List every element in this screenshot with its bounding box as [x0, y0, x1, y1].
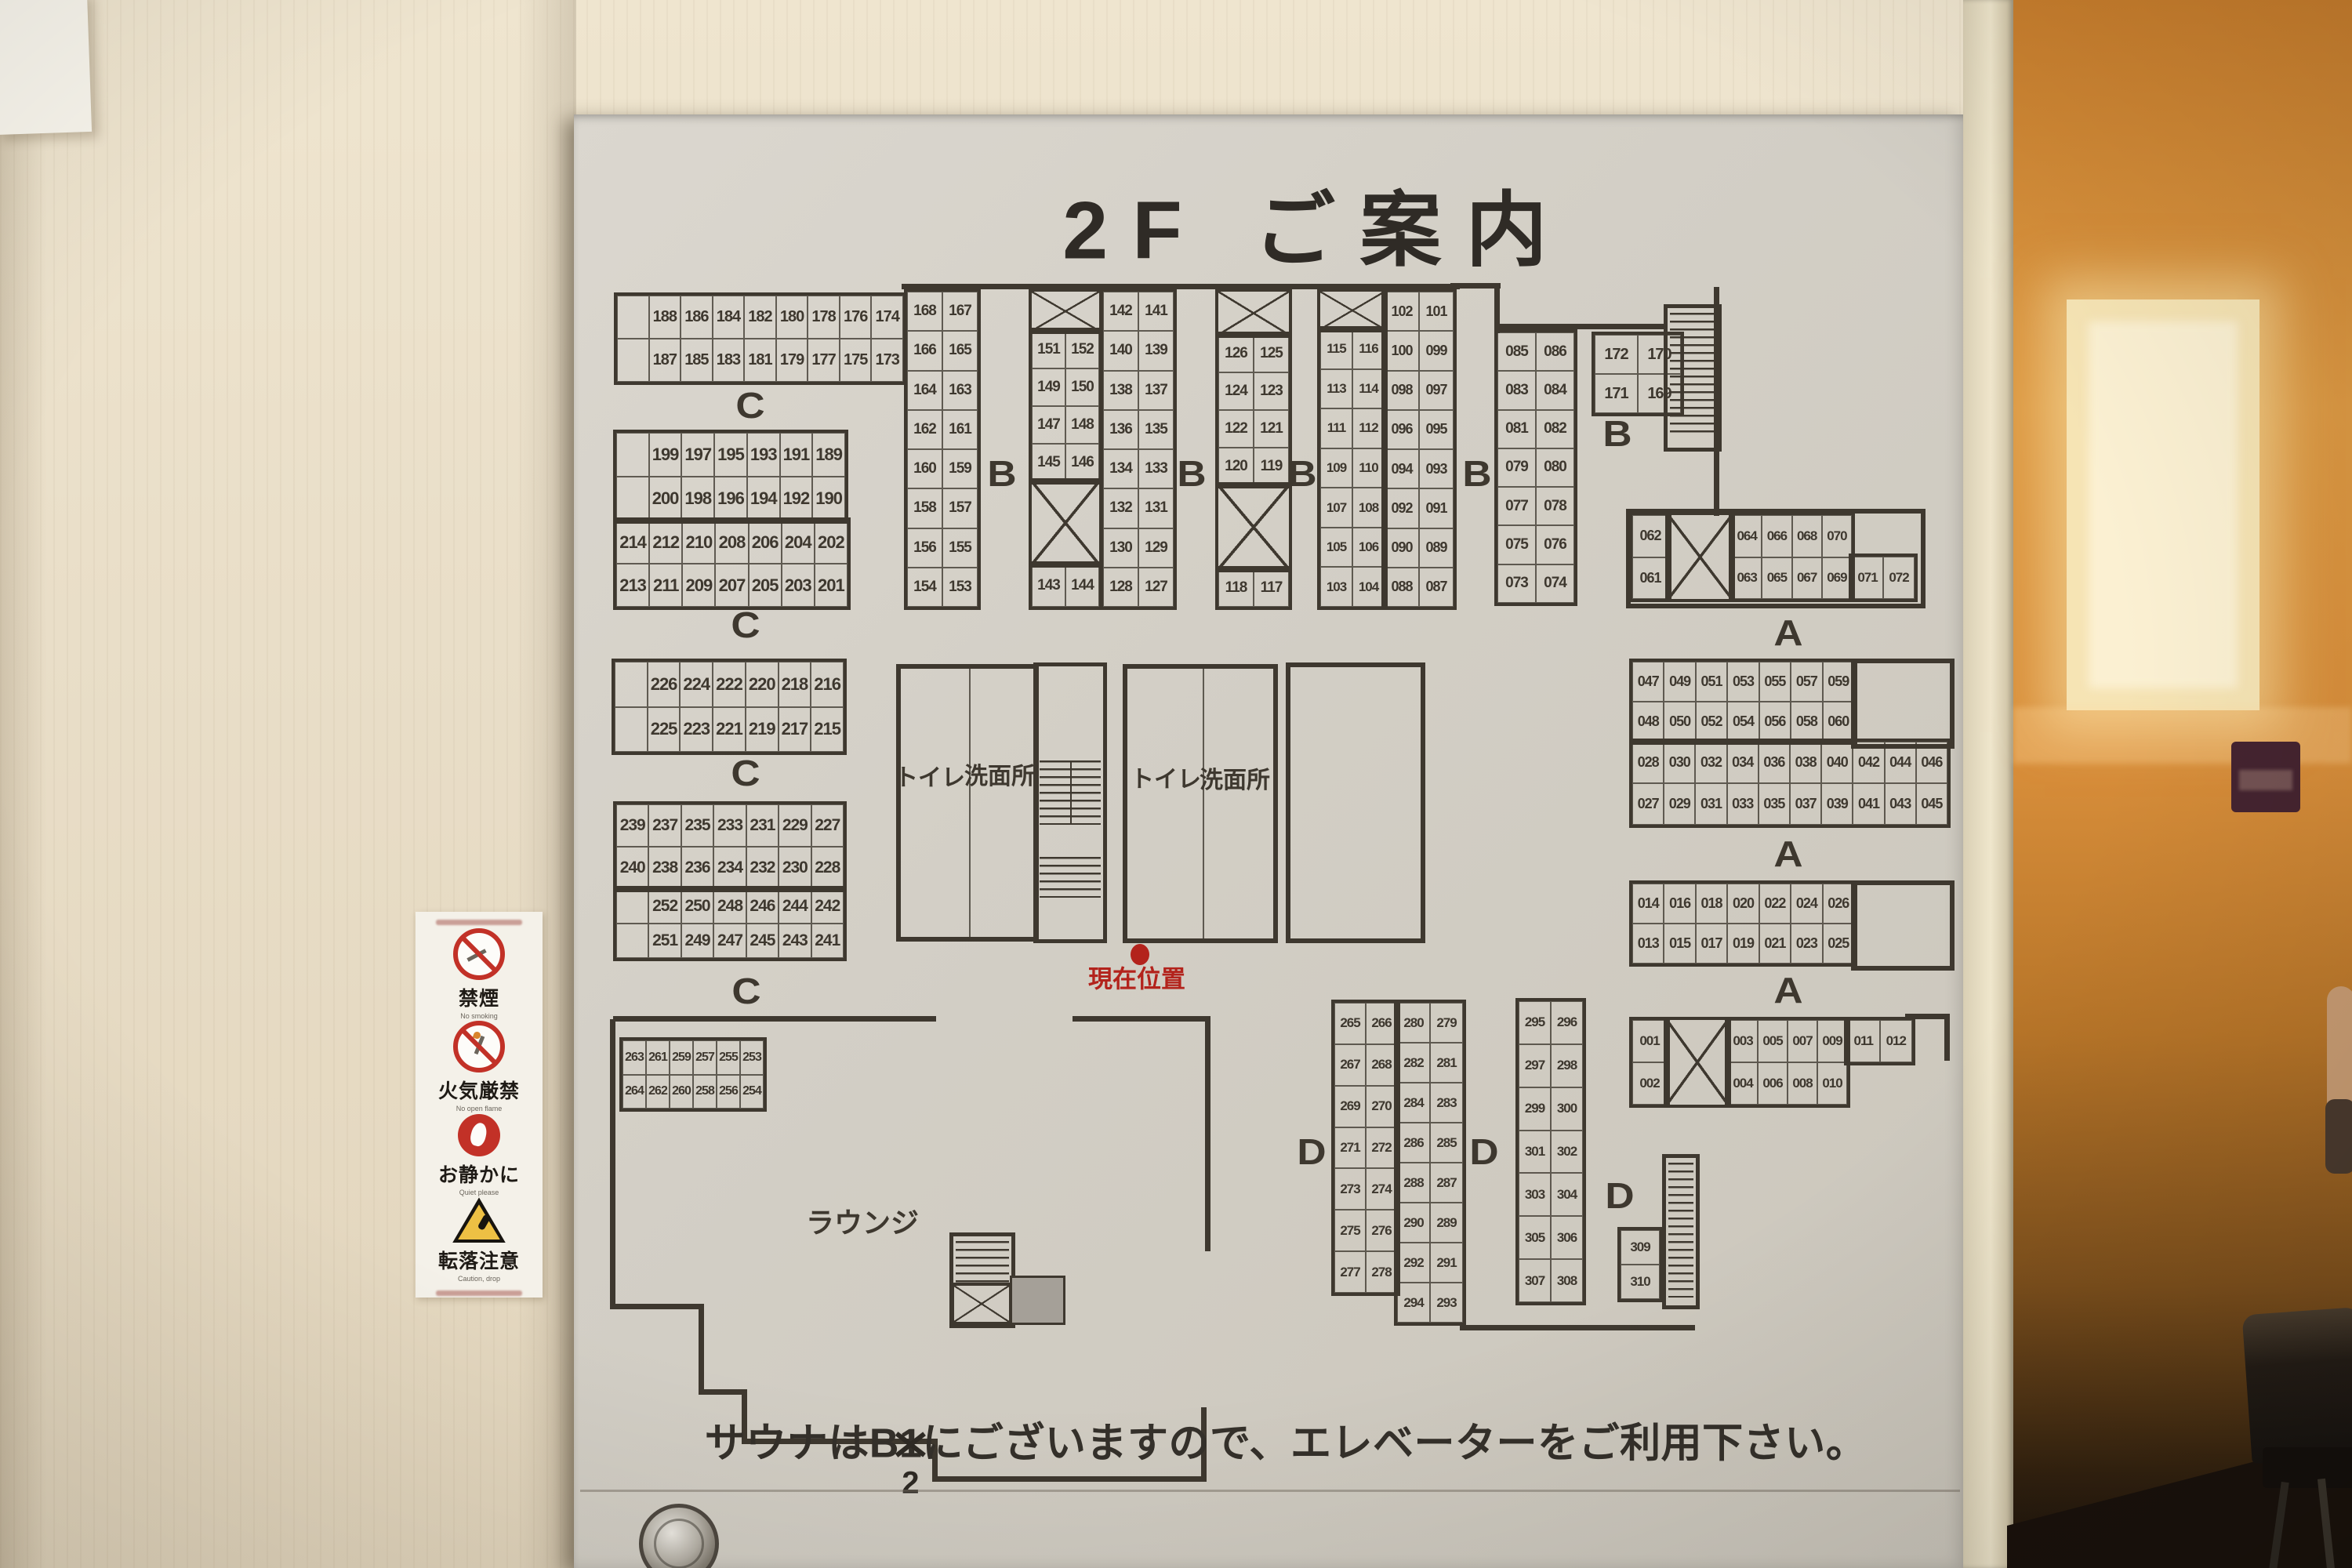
hallway-wall-sign: [2231, 742, 2300, 812]
capsule-grid-c-253: 263261259257255253264262260258256254: [619, 1037, 767, 1112]
capsule-cell: 086: [1536, 332, 1574, 371]
capsule-cell: 183: [713, 339, 745, 382]
capsule-grid-d-295: 2952962972982993003013023033043053063073…: [1515, 998, 1586, 1305]
capsule-cell: 306: [1551, 1216, 1583, 1259]
capsule-cell: 111: [1320, 408, 1352, 448]
sauna-note-correction: 2: [902, 1465, 920, 1501]
capsule-cell: 154: [907, 568, 942, 607]
capsule-cell: 016: [1664, 884, 1695, 924]
capsule-cell: [617, 339, 649, 382]
capsule-cell: 042: [1853, 742, 1884, 783]
capsule-grid-a-027: 0280300320340360380400420440460270290310…: [1629, 739, 1951, 828]
capsule-cell: 297: [1519, 1044, 1551, 1087]
capsule-grid-a-013: 0140160180200220240260130150170190210230…: [1629, 880, 1857, 967]
section-letter-B: B: [1287, 452, 1316, 495]
section-letter-B: B: [1462, 452, 1491, 495]
capsule-cell: 231: [746, 804, 779, 847]
capsule-cell: 175: [840, 339, 872, 382]
warning-label-en: No open flame: [456, 1105, 503, 1112]
capsule-cell: 109: [1320, 448, 1352, 488]
capsule-cell: 189: [812, 433, 845, 477]
capsule-cell: 144: [1065, 564, 1099, 607]
capsule-cell: 065: [1762, 557, 1791, 600]
capsule-cell: 128: [1103, 568, 1138, 607]
capsule-cell: 072: [1883, 557, 1915, 599]
capsule-cell: 106: [1352, 528, 1385, 568]
sticker-small-print: [436, 920, 522, 925]
crossed-box: [1215, 482, 1292, 572]
capsule-cell: 130: [1103, 528, 1138, 568]
capsule-cell: 211: [649, 564, 682, 607]
person-sleeve: [2325, 1099, 2352, 1174]
capsule-cell: [616, 924, 648, 958]
capsule-cell: 156: [907, 528, 942, 568]
stair-treads: [956, 1241, 1009, 1288]
capsule-cell: 099: [1419, 331, 1454, 370]
capsule-cell: 138: [1103, 371, 1138, 410]
capsule-cell: 125: [1254, 335, 1289, 372]
capsule-cell: 261: [646, 1040, 670, 1075]
capsule-cell: 285: [1430, 1123, 1463, 1163]
capsule-cell: 170: [1638, 335, 1681, 374]
capsule-cell: 277: [1334, 1251, 1366, 1293]
capsule-cell: 251: [648, 924, 681, 958]
capsule-cell: 165: [942, 331, 978, 370]
capsule-cell: 217: [779, 707, 811, 753]
capsule-cell: 296: [1551, 1001, 1583, 1044]
capsule-cell: 200: [649, 477, 682, 521]
sauna-note-pre: サウナは: [705, 1421, 869, 1467]
hallway-light-band: [2013, 707, 2352, 764]
capsule-cell: 017: [1696, 924, 1727, 964]
capsule-grid-d-279: 2802792822812842832862852882872902892922…: [1394, 1000, 1466, 1326]
capsule-cell: 162: [907, 410, 942, 449]
capsule-cell: 003: [1728, 1020, 1758, 1062]
warning-label-en: Quiet please: [459, 1189, 499, 1196]
capsule-cell: 169: [1638, 374, 1681, 413]
capsule-cell: 079: [1497, 448, 1536, 487]
capsule-cell: 187: [649, 339, 681, 382]
capsule-cell: 117: [1254, 569, 1289, 607]
capsule-cell: 135: [1138, 410, 1174, 449]
capsule-cell: 197: [681, 433, 714, 477]
capsule-cell: 167: [942, 292, 978, 331]
facility-room: [1123, 664, 1278, 943]
capsule-cell: 213: [616, 564, 649, 607]
capsule-cell: 021: [1759, 924, 1791, 964]
room-divider-line: [1203, 669, 1204, 938]
capsule-cell: 229: [779, 804, 811, 847]
stair-treads: [1668, 1163, 1693, 1298]
capsule-cell: 293: [1430, 1283, 1463, 1323]
capsule-cell: 202: [815, 521, 848, 564]
capsule-cell: 096: [1385, 410, 1419, 449]
capsule-cell: 225: [648, 707, 681, 753]
capsule-cell: 121: [1254, 410, 1289, 448]
warning-label-en: Caution, drop: [458, 1275, 500, 1283]
capsule-cell: 085: [1497, 332, 1536, 371]
capsule-grid-c-top: 1881861841821801781761741871851831811791…: [614, 292, 906, 385]
warning-sticker: 禁煙No smoking火気厳禁No open flameお静かにQuiet p…: [416, 912, 543, 1298]
capsule-grid-b-087: 1021011000990980970960950940930920910900…: [1381, 289, 1457, 610]
capsule-cell: 035: [1759, 783, 1790, 825]
capsule-cell: 302: [1551, 1131, 1583, 1174]
capsule-cell: 234: [713, 847, 746, 889]
capsule-cell: 290: [1397, 1203, 1430, 1243]
capsule-cell: 174: [871, 296, 903, 339]
capsule-cell: 073: [1497, 564, 1536, 603]
capsule-grid-a-003: 003005007009004006008010: [1725, 1017, 1850, 1108]
capsule-cell: 262: [646, 1075, 670, 1109]
warning-sticker-items: 禁煙No smoking火気厳禁No open flameお静かにQuiet p…: [438, 927, 520, 1284]
capsule-cell: 279: [1430, 1003, 1463, 1043]
capsule-cell: 164: [907, 371, 942, 410]
capsule-cell: [615, 662, 648, 707]
capsule-cell: 136: [1103, 410, 1138, 449]
section-letter-B: B: [1177, 452, 1206, 495]
capsule-cell: 304: [1551, 1173, 1583, 1216]
capsule-cell: 253: [740, 1040, 764, 1075]
capsule-cell: 030: [1664, 742, 1695, 783]
lit-panel: [2067, 299, 2259, 710]
capsule-cell: 280: [1397, 1003, 1430, 1043]
capsule-cell: 232: [746, 847, 779, 889]
capsule-grid-b-169: 172170171169: [1592, 332, 1684, 416]
capsule-cell: 101: [1419, 292, 1454, 331]
capsule-cell: 060: [1823, 702, 1854, 742]
section-letter-A: A: [1773, 833, 1802, 875]
capsule-cell: 194: [747, 477, 780, 521]
capsule-cell: 247: [713, 924, 746, 958]
capsule-cell: 103: [1320, 567, 1352, 607]
capsule-cell: 095: [1419, 410, 1454, 449]
capsule-cell: 039: [1821, 783, 1853, 825]
capsule-cell: 009: [1817, 1020, 1847, 1062]
capsule-cell: 291: [1430, 1243, 1463, 1283]
capsule-cell: 191: [780, 433, 813, 477]
wall-segment: [932, 1476, 1207, 1482]
capsule-cell: 036: [1759, 742, 1790, 783]
capsule-cell: 129: [1138, 528, 1174, 568]
capsule-cell: 270: [1366, 1086, 1397, 1127]
warning-label-jp: 転落注意: [438, 1246, 520, 1274]
warning-item: お静かにQuiet please: [438, 1114, 520, 1196]
room-outline: [1851, 659, 1955, 749]
current-location-label: 現在位置: [1088, 960, 1185, 995]
capsule-cell: 071: [1852, 557, 1883, 599]
capsule-cell: 146: [1065, 444, 1099, 481]
no-smoking-icon: [453, 928, 505, 980]
capsule-cell: 112: [1352, 408, 1385, 448]
capsule-cell: 063: [1732, 557, 1762, 600]
capsule-cell: 108: [1352, 488, 1385, 528]
capsule-cell: 002: [1632, 1062, 1667, 1105]
section-letter-B: B: [1602, 412, 1632, 455]
capsule-cell: 205: [749, 564, 782, 607]
room-outline: [1851, 880, 1955, 971]
capsule-cell: 186: [681, 296, 713, 339]
capsule-cell: 089: [1419, 528, 1454, 568]
capsule-cell: 274: [1366, 1168, 1397, 1210]
capsule-cell: 166: [907, 331, 942, 370]
section-letter-A: A: [1773, 969, 1802, 1011]
capsule-cell: 061: [1632, 557, 1668, 600]
capsule-cell: 076: [1536, 525, 1574, 564]
capsule-cell: 075: [1497, 525, 1536, 564]
capsule-cell: 005: [1758, 1020, 1788, 1062]
capsule-grid-b-145: 151152149150147148145146: [1029, 328, 1102, 485]
capsule-cell: 102: [1385, 292, 1419, 331]
warning-label-jp: お静かに: [438, 1160, 520, 1188]
capsule-cell: 081: [1497, 410, 1536, 448]
capsule-cell: 053: [1727, 662, 1759, 702]
capsule-cell: 066: [1762, 515, 1791, 557]
capsule-cell: 214: [616, 521, 649, 564]
capsule-grid-c-215: 226224222220218216225223221219217215: [612, 659, 847, 755]
capsule-cell: 149: [1032, 368, 1065, 406]
capsule-cell: 161: [942, 410, 978, 449]
capsule-cell: 020: [1727, 884, 1759, 924]
capsule-cell: [616, 477, 649, 521]
capsule-cell: 160: [907, 449, 942, 488]
capsule-grid-a-071: 071072: [1849, 554, 1918, 602]
capsule-cell: 078: [1536, 487, 1574, 525]
capsule-cell: 242: [811, 889, 844, 924]
capsule-cell: 235: [681, 804, 713, 847]
capsule-grid-c-241: 252250248246244242251249247245243241: [613, 886, 847, 961]
capsule-cell: 266: [1366, 1003, 1397, 1044]
room-label: トイレ: [1131, 760, 1201, 794]
capsule-cell: 084: [1536, 371, 1574, 409]
capsule-cell: 019: [1727, 924, 1759, 964]
sticker-small-print: [436, 1290, 522, 1296]
capsule-grid-b-153: 1681671661651641631621611601591581571561…: [904, 289, 981, 610]
capsule-cell: 273: [1334, 1168, 1366, 1210]
capsule-cell: 239: [616, 804, 648, 847]
capsule-cell: 233: [713, 804, 746, 847]
stair-treads: [1040, 760, 1101, 825]
capsule-cell: 196: [714, 477, 747, 521]
wall-segment: [1460, 1325, 1695, 1330]
capsule-cell: 097: [1419, 371, 1454, 410]
capsule-cell: 113: [1320, 369, 1352, 409]
door-frame: [1963, 0, 2013, 1568]
room-label: トイレ: [895, 758, 965, 793]
capsule-cell: 265: [1334, 1003, 1366, 1044]
capsule-cell: 255: [717, 1040, 740, 1075]
capsule-cell: 098: [1385, 371, 1419, 410]
capsule-cell: 244: [779, 889, 811, 924]
sauna-note-struck-digit: 12: [899, 1421, 922, 1468]
shaded-block: [1010, 1276, 1065, 1325]
facility-room: [896, 664, 1039, 942]
capsule-cell: 172: [1595, 335, 1638, 374]
capsule-cell: 272: [1366, 1127, 1397, 1169]
chair-seat: [2263, 1447, 2352, 1488]
capsule-cell: 132: [1103, 488, 1138, 528]
capsule-cell: 018: [1696, 884, 1727, 924]
capsule-cell: 026: [1823, 884, 1854, 924]
room-label: 洗面所: [964, 757, 1035, 791]
capsule-cell: 283: [1430, 1083, 1463, 1123]
capsule-cell: 122: [1218, 410, 1254, 448]
capsule-cell: 090: [1385, 528, 1419, 568]
capsule-cell: 028: [1632, 742, 1664, 783]
capsule-cell: 298: [1551, 1044, 1583, 1087]
capsule-cell: 120: [1218, 448, 1254, 485]
capsule-cell: [616, 433, 649, 477]
capsule-cell: 215: [811, 707, 844, 753]
capsule-cell: 207: [715, 564, 748, 607]
capsule-cell: 254: [740, 1075, 764, 1109]
capsule-cell: 014: [1632, 884, 1664, 924]
capsule-cell: 300: [1551, 1087, 1583, 1131]
capsule-grid-a-047: 0470490510530550570590480500520540560580…: [1629, 659, 1857, 745]
capsule-grid-b-103: 1151161131141111121091101071081051061031…: [1317, 326, 1388, 610]
capsule-cell: 246: [746, 889, 779, 924]
capsule-cell: 115: [1320, 329, 1352, 369]
capsule-cell: 069: [1822, 557, 1852, 600]
capsule-cell: 092: [1385, 488, 1419, 528]
capsule-cell: 303: [1519, 1173, 1551, 1216]
capsule-cell: 059: [1823, 662, 1854, 702]
capsule-cell: 248: [713, 889, 746, 924]
wall-segment: [610, 1304, 704, 1309]
capsule-cell: 119: [1254, 448, 1289, 485]
capsule-grid-c-227: 2392372352332312292272402382362342322302…: [613, 801, 847, 892]
room-label: 洗面所: [1200, 760, 1270, 795]
capsule-grid-b-127: 1421411401391381371361351341331321311301…: [1100, 289, 1177, 610]
capsule-grid-b-143: 143144: [1029, 561, 1102, 610]
capsule-grid-a-001: 001002: [1629, 1017, 1670, 1108]
capsule-cell: 289: [1430, 1203, 1463, 1243]
capsule-cell: 040: [1821, 742, 1853, 783]
warning-item: 禁煙No smoking: [453, 928, 505, 1020]
capsule-cell: 045: [1916, 783, 1947, 825]
capsule-cell: 047: [1632, 662, 1664, 702]
capsule-cell: 263: [622, 1040, 646, 1075]
capsule-cell: 192: [780, 477, 813, 521]
capsule-cell: 147: [1032, 406, 1065, 444]
capsule-cell: 168: [907, 292, 942, 331]
capsule-cell: 257: [693, 1040, 717, 1075]
capsule-cell: 055: [1759, 662, 1791, 702]
capsule-cell: [615, 707, 648, 753]
capsule-cell: 134: [1103, 449, 1138, 488]
capsule-cell: 193: [747, 433, 780, 477]
crossed-box: [1664, 1017, 1731, 1108]
capsule-cell: 110: [1352, 448, 1385, 488]
capsule-cell: 056: [1759, 702, 1791, 742]
capsule-cell: 052: [1696, 702, 1727, 742]
capsule-cell: 107: [1320, 488, 1352, 528]
capsule-cell: 305: [1519, 1216, 1551, 1259]
capsule-cell: 068: [1792, 515, 1822, 557]
wall-segment: [1073, 1016, 1210, 1022]
capsule-cell: 176: [840, 296, 872, 339]
capsule-cell: 219: [746, 707, 779, 753]
capsule-cell: 275: [1334, 1210, 1366, 1251]
capsule-cell: 123: [1254, 372, 1289, 410]
stair-treads: [1040, 857, 1101, 898]
capsule-cell: 083: [1497, 371, 1536, 409]
capsule-grid-d-265: 2652662672682692702712722732742752762772…: [1331, 1000, 1400, 1296]
capsule-cell: 185: [681, 339, 713, 382]
warning-item: 火気厳禁No open flame: [438, 1021, 520, 1112]
capsule-cell: 007: [1788, 1020, 1817, 1062]
capsule-cell: 077: [1497, 487, 1536, 525]
room-label: ラウンジ: [806, 1200, 919, 1241]
capsule-cell: 140: [1103, 331, 1138, 370]
capsule-cell: 054: [1727, 702, 1759, 742]
capsule-cell: 157: [942, 488, 978, 528]
quiet-please-icon: [458, 1114, 500, 1156]
capsule-cell: 299: [1519, 1087, 1551, 1131]
capsule-cell: 180: [776, 296, 808, 339]
capsule-cell: 105: [1320, 528, 1352, 568]
capsule-cell: 284: [1397, 1083, 1430, 1123]
capsule-cell: 015: [1664, 924, 1695, 964]
capsule-cell: 043: [1885, 783, 1916, 825]
capsule-cell: 287: [1430, 1163, 1463, 1203]
capsule-cell: 001: [1632, 1020, 1667, 1062]
capsule-cell: 264: [622, 1075, 646, 1109]
capsule-cell: 114: [1352, 369, 1385, 409]
room-outline: [1286, 662, 1425, 943]
capsule-cell: 203: [782, 564, 815, 607]
capsule-cell: 148: [1065, 406, 1099, 444]
capsule-grid-a-063: 064066068070063065067069: [1729, 512, 1855, 602]
capsule-cell: 145: [1032, 444, 1065, 481]
capsule-cell: 301: [1519, 1131, 1551, 1174]
capsule-cell: 022: [1759, 884, 1791, 924]
capsule-cell: 208: [715, 521, 748, 564]
scene: 2F ご案内 188186184182180178176174187185183…: [0, 0, 2352, 1568]
capsule-cell: 142: [1103, 292, 1138, 331]
capsule-cell: 050: [1664, 702, 1695, 742]
capsule-cell: 137: [1138, 371, 1174, 410]
capsule-cell: 008: [1788, 1062, 1817, 1105]
capsule-grid-a-061: 062061: [1629, 512, 1671, 602]
staircase: [1033, 662, 1107, 943]
capsule-cell: 118: [1218, 569, 1254, 607]
wall-segment: [1205, 1016, 1210, 1251]
capsule-cell: 224: [680, 662, 713, 707]
capsule-cell: 011: [1847, 1020, 1880, 1062]
section-letter-C: C: [731, 604, 760, 646]
capsule-cell: 238: [648, 847, 681, 889]
wall-segment: [610, 1019, 615, 1309]
section-letter-D: D: [1297, 1131, 1326, 1173]
capsule-cell: 152: [1065, 331, 1099, 368]
capsule-cell: 031: [1695, 783, 1726, 825]
no-open-flame-icon: [453, 1021, 505, 1073]
capsule-cell: 010: [1817, 1062, 1847, 1105]
capsule-cell: 178: [808, 296, 840, 339]
capsule-cell: 226: [648, 662, 681, 707]
capsule-cell: 012: [1880, 1020, 1913, 1062]
capsule-cell: 307: [1519, 1259, 1551, 1302]
capsule-cell: 267: [1334, 1044, 1366, 1086]
capsule-cell: [617, 296, 649, 339]
capsule-cell: 268: [1366, 1044, 1397, 1086]
capsule-cell: 188: [649, 296, 681, 339]
capsule-cell: 091: [1419, 488, 1454, 528]
capsule-cell: 049: [1664, 662, 1695, 702]
board-edge-line: [580, 1490, 1960, 1492]
section-letter-D: D: [1469, 1131, 1498, 1173]
capsule-cell: 281: [1430, 1043, 1463, 1083]
